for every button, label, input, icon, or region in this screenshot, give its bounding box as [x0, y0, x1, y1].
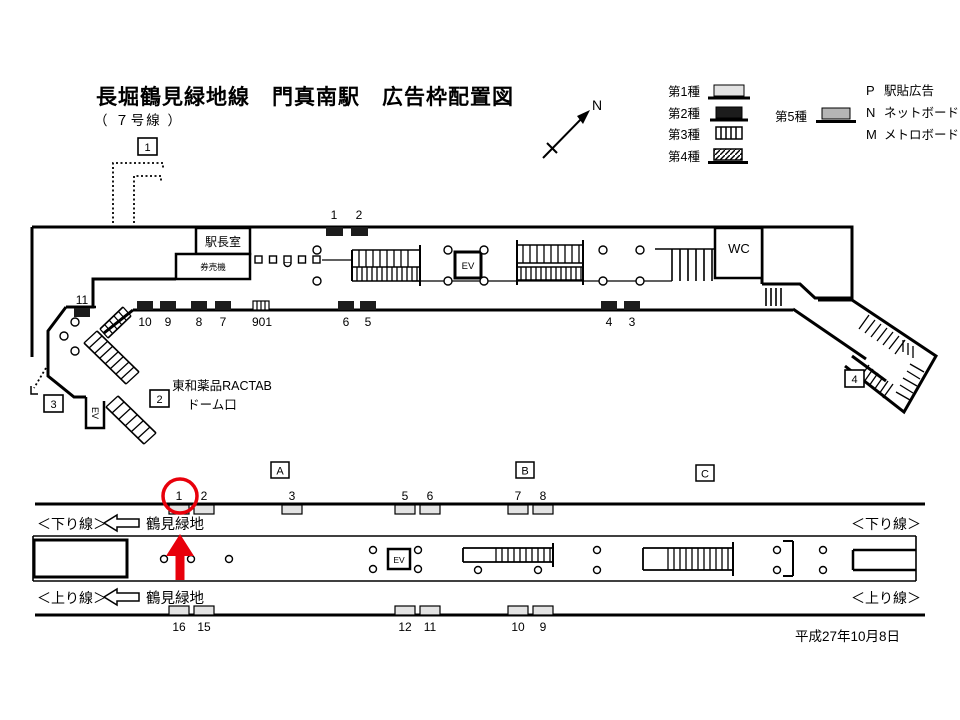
exit-elevator-label: EV: [90, 407, 100, 419]
legend-type2-swatch: [716, 107, 742, 118]
ad-num-p5: 5: [402, 489, 409, 503]
ad-num-p6: 6: [427, 489, 434, 503]
ad-box-c7: [215, 301, 231, 310]
ad-num-c901: 901: [252, 315, 272, 329]
ad-box-c8: [191, 301, 207, 310]
ad-box-p12: [395, 606, 415, 615]
diagram-svg: 長堀鶴見緑地線 門真南駅 広告枠配置図 （ ７号線 ） N 第1種 第2種 第3…: [0, 0, 960, 720]
ad-num-p3: 3: [289, 489, 296, 503]
ad-num-c5: 5: [365, 315, 372, 329]
ad-box-c9: [160, 301, 176, 310]
legend-type1-label: 第1種: [668, 85, 700, 99]
ad-box-c2: [351, 227, 368, 236]
up-line-label-right: ＜上り線＞: [851, 590, 921, 606]
direction-tsurumi-bottom: 鶴見緑地: [146, 590, 204, 607]
ad-num-c3: 3: [629, 315, 636, 329]
ad-num-p10: 10: [511, 620, 525, 634]
wc-label: WC: [728, 241, 750, 256]
exit2-label: 2: [156, 394, 162, 406]
ad-box-p15: [194, 606, 214, 615]
legend-m-label: メトロボード: [884, 128, 959, 142]
concourse-elevator: EV: [455, 252, 481, 278]
ad-num-p8: 8: [540, 489, 547, 503]
ad-num-p1: 1: [176, 489, 183, 503]
section-a-label: A: [276, 466, 284, 478]
ad-box-c3: [624, 301, 640, 310]
ad-box-c10: [137, 301, 153, 310]
facility-name-line1: 東和薬品RACTAB: [172, 379, 272, 393]
concourse-ev-label: EV: [462, 261, 475, 272]
ad-box-p10: [508, 606, 528, 615]
platform-elevator: EV: [388, 549, 410, 569]
legend-type3-swatch: [716, 127, 742, 139]
legend-n-label: ネットボード: [884, 106, 959, 120]
ticket-machine-label: 券売機: [200, 262, 226, 272]
ad-box-c11: [74, 308, 90, 317]
ad-num-c2: 2: [356, 208, 363, 222]
exit3-label: 3: [50, 399, 56, 411]
ticket-machine-room: 券売機: [176, 254, 250, 279]
ad-box-c1: [326, 227, 343, 236]
ad-num-p15: 15: [197, 620, 211, 634]
ad-box-p3: [282, 505, 302, 514]
ad-box-c901: [253, 301, 269, 310]
station-master-room: 駅長室: [196, 228, 250, 254]
legend-type2-label: 第2種: [668, 107, 700, 121]
ad-box-p9: [533, 606, 553, 615]
ad-num-p16: 16: [172, 620, 186, 634]
platform-ev-label: EV: [393, 555, 405, 565]
legend-type3-label: 第3種: [668, 128, 700, 142]
legend-type5-swatch: [822, 108, 850, 119]
page-title: 長堀鶴見緑地線 門真南駅 広告枠配置図: [96, 85, 514, 109]
station-master-room-label: 駅長室: [205, 234, 241, 249]
legend-p-code: P: [866, 83, 875, 98]
ad-box-c6: [338, 301, 354, 310]
ad-num-c4: 4: [606, 315, 613, 329]
section-b-label: B: [521, 466, 528, 478]
legend-m-code: M: [866, 127, 877, 142]
ad-num-c6: 6: [343, 315, 350, 329]
ad-num-c9: 9: [165, 315, 172, 329]
ad-box-p6: [420, 505, 440, 514]
ad-box-p7: [508, 505, 528, 514]
ad-num-c8: 8: [196, 315, 203, 329]
direction-tsurumi-top: 鶴見緑地: [146, 516, 204, 533]
legend-type4-swatch: [714, 149, 742, 160]
ad-num-c11: 11: [76, 293, 89, 307]
up-line-label-left: ＜上り線＞: [37, 590, 107, 606]
legend-n-code: N: [866, 105, 875, 120]
ad-num-c7: 7: [220, 315, 227, 329]
legend-p-label: 駅貼広告: [884, 83, 934, 98]
page-subtitle: （ ７号線 ）: [94, 113, 183, 128]
section-c-label: C: [701, 469, 709, 481]
ad-num-p12: 12: [398, 620, 412, 634]
down-line-label-left: ＜下り線＞: [37, 516, 107, 532]
revision-date: 平成27年10月8日: [795, 629, 900, 644]
station-ad-diagram: 長堀鶴見緑地線 門真南駅 広告枠配置図 （ ７号線 ） N 第1種 第2種 第3…: [0, 0, 960, 720]
ad-box-p16: [169, 606, 189, 615]
ad-num-p2: 2: [201, 489, 208, 503]
legend-type5-label: 第5種: [775, 110, 807, 124]
ad-box-p5: [395, 505, 415, 514]
ad-box-p11: [420, 606, 440, 615]
exit1-label: 1: [144, 142, 150, 154]
exit4-label: 4: [851, 374, 857, 386]
legend-type4-label: 第4種: [668, 150, 700, 164]
ad-num-c10: 10: [138, 315, 152, 329]
ad-num-c1: 1: [331, 208, 338, 222]
ad-box-p8: [533, 505, 553, 514]
ad-num-p9: 9: [540, 620, 547, 634]
facility-name-line2: ドーム口: [187, 398, 237, 412]
ad-num-p11: 11: [424, 620, 437, 634]
ad-box-c5: [360, 301, 376, 310]
wc-room: WC: [715, 228, 762, 278]
legend-type1-swatch: [714, 85, 744, 96]
down-line-label-right: ＜下り線＞: [851, 516, 921, 532]
ad-num-p7: 7: [515, 489, 522, 503]
ad-box-c4: [601, 301, 617, 310]
compass-label: N: [592, 97, 602, 113]
ad-box-p2: [194, 505, 214, 514]
